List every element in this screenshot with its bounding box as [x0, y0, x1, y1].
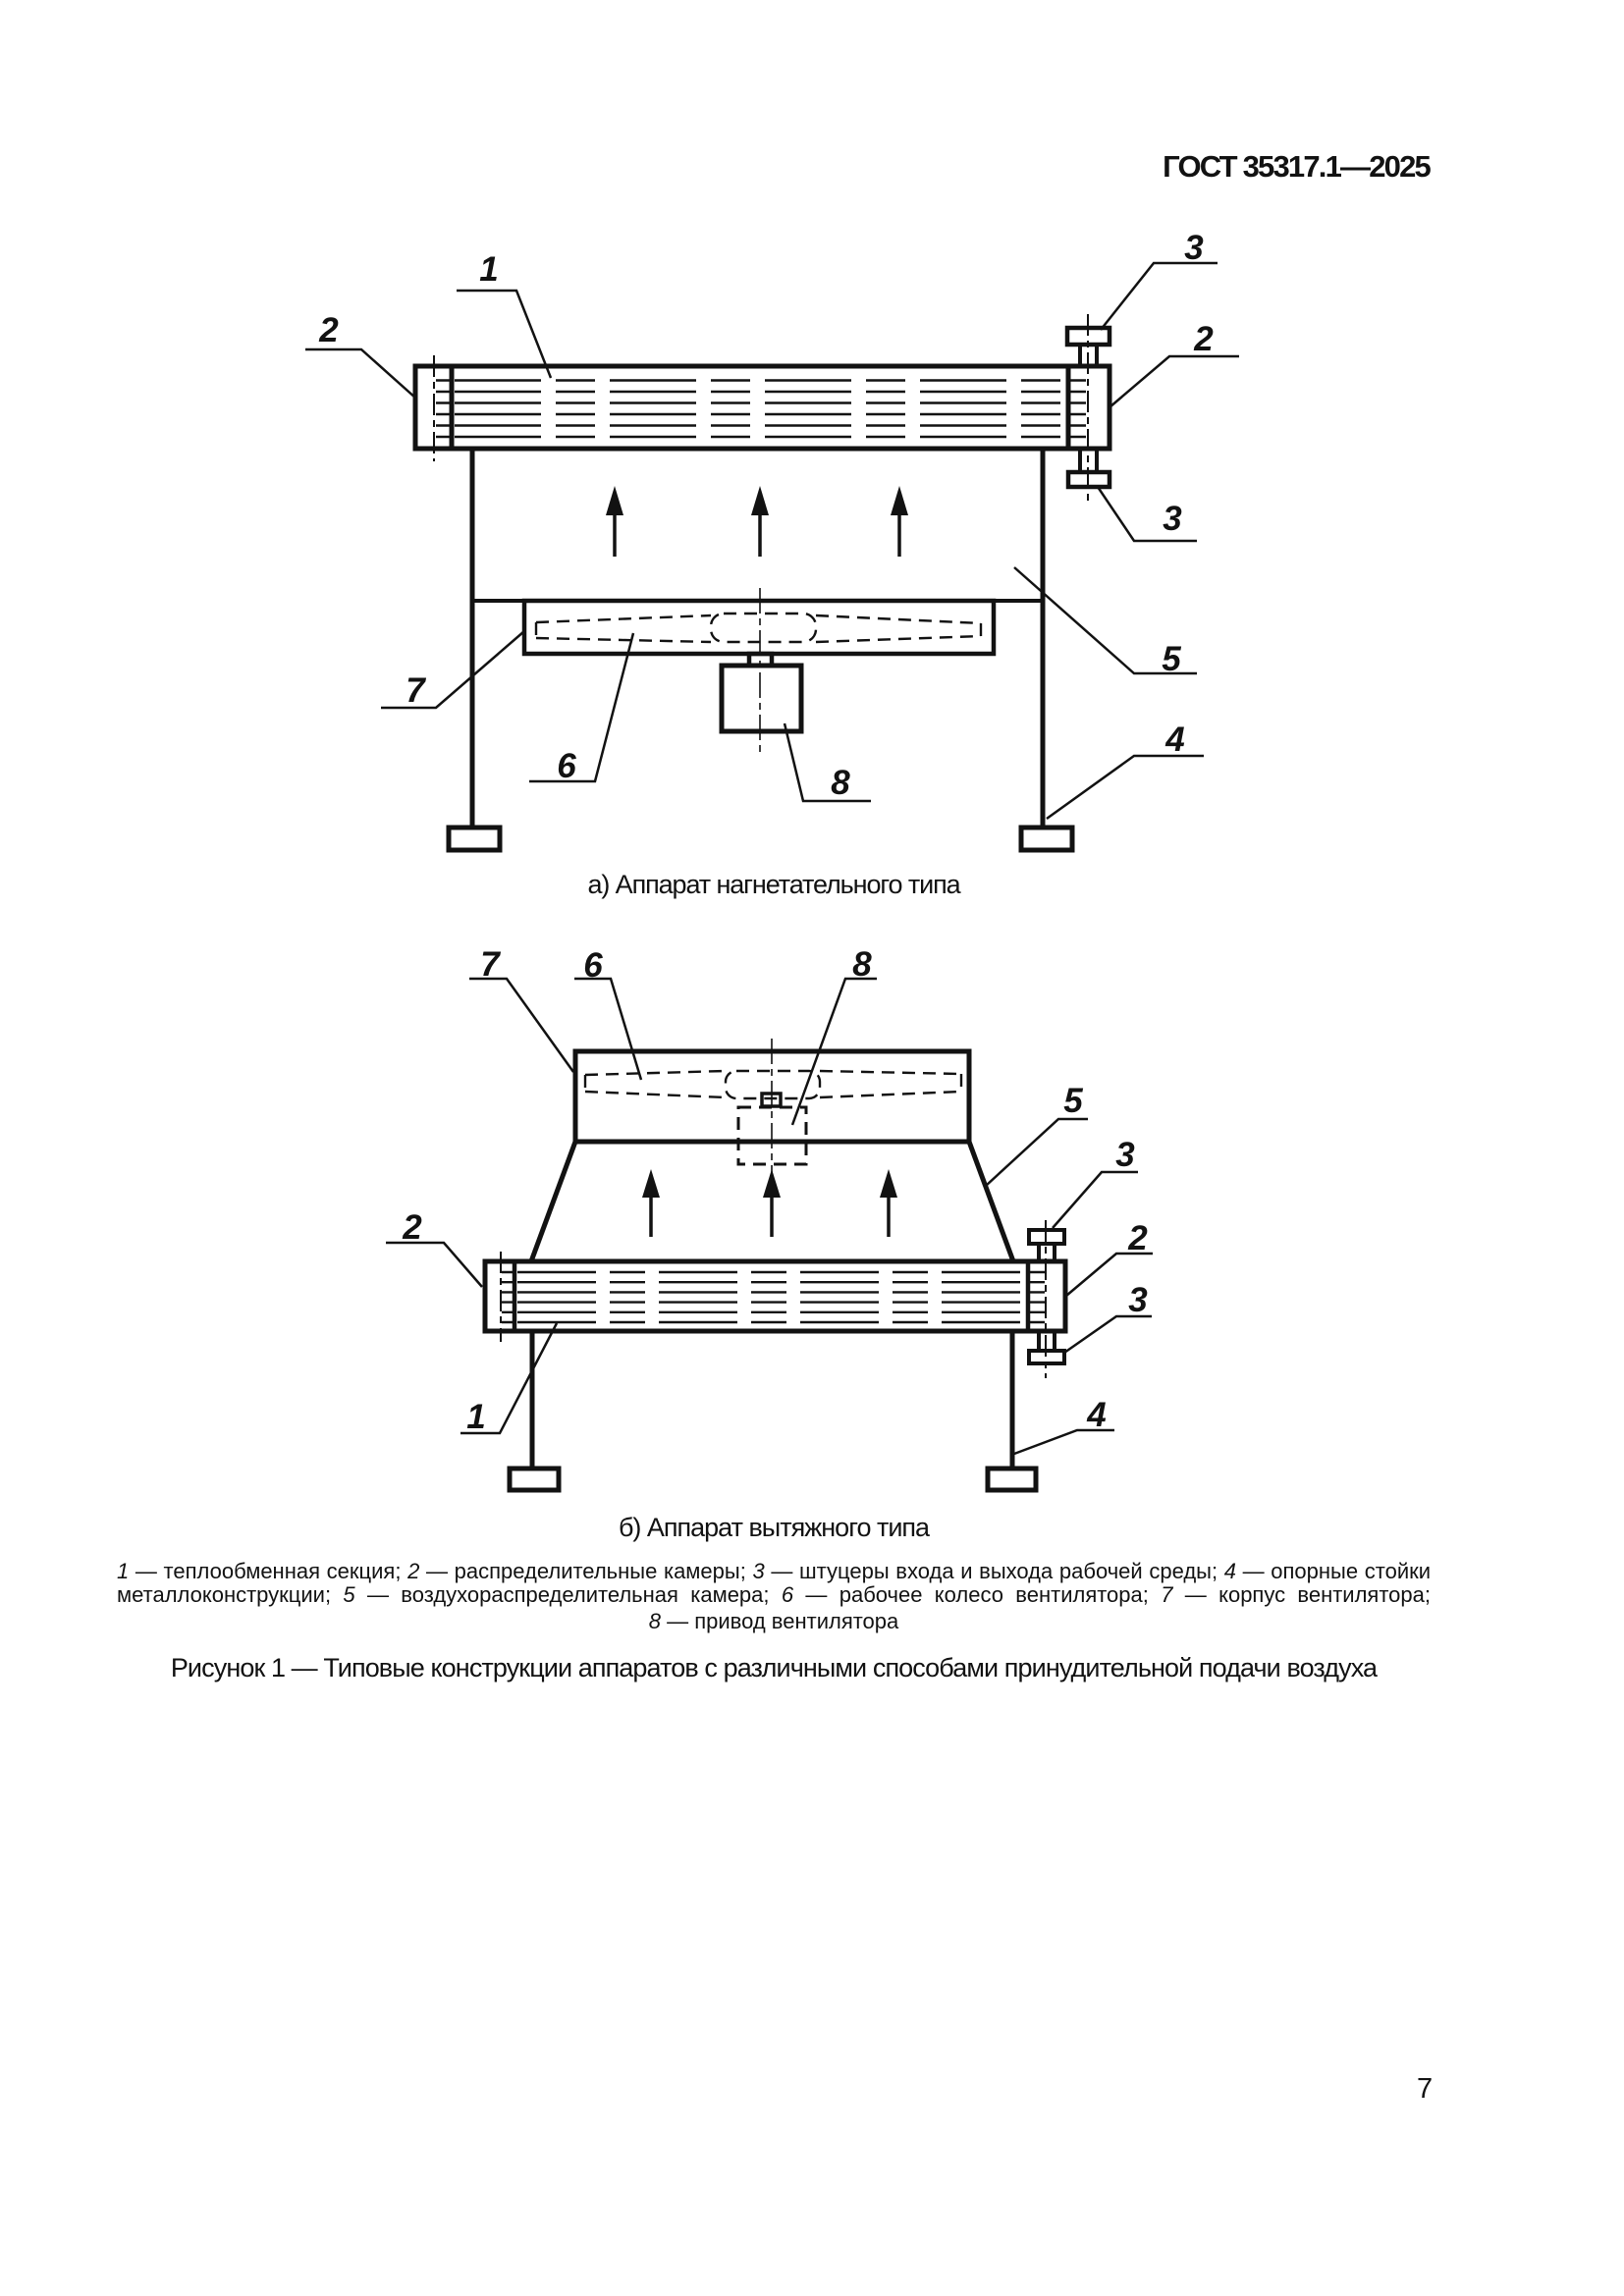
svg-text:5: 5: [1162, 640, 1181, 678]
svg-text:3: 3: [1115, 1136, 1135, 1174]
svg-text:2: 2: [1193, 320, 1214, 358]
svg-text:2: 2: [1127, 1219, 1148, 1257]
svg-text:4: 4: [1164, 721, 1184, 759]
svg-text:3: 3: [1163, 500, 1182, 538]
svg-text:6: 6: [557, 747, 576, 785]
svg-text:4: 4: [1086, 1396, 1106, 1434]
svg-text:6: 6: [583, 946, 603, 985]
svg-text:1: 1: [466, 1398, 485, 1436]
svg-text:7: 7: [480, 945, 501, 984]
svg-text:7: 7: [406, 671, 426, 710]
svg-text:8: 8: [831, 764, 850, 802]
svg-text:8: 8: [852, 945, 872, 984]
svg-text:3: 3: [1184, 229, 1204, 267]
svg-text:2: 2: [402, 1208, 422, 1247]
svg-text:2: 2: [318, 311, 339, 349]
svg-text:3: 3: [1128, 1281, 1148, 1319]
svg-text:1: 1: [479, 250, 498, 289]
svg-text:5: 5: [1063, 1082, 1083, 1120]
